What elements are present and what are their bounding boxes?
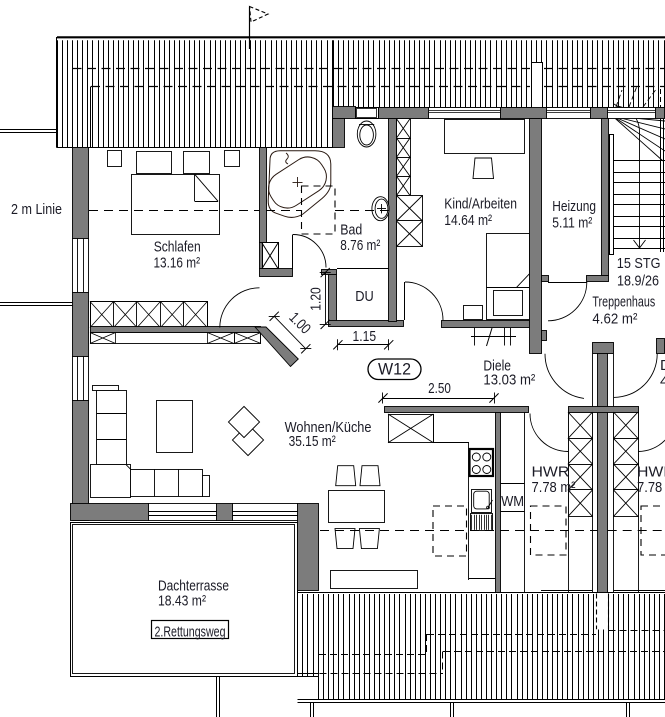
- svg-text:7.78 m²: 7.78 m²: [637, 479, 665, 496]
- svg-text:18.9/26: 18.9/26: [617, 272, 659, 289]
- svg-text:5.11 m²: 5.11 m²: [552, 215, 592, 232]
- svg-text:35.15 m²: 35.15 m²: [289, 433, 336, 450]
- svg-text:13.03 m²: 13.03 m²: [483, 371, 535, 388]
- svg-text:14.64 m²: 14.64 m²: [444, 212, 492, 229]
- svg-text:DU: DU: [355, 288, 374, 305]
- svg-text:WM: WM: [501, 493, 524, 510]
- svg-text:Schlafen: Schlafen: [154, 239, 201, 256]
- svg-text:2.50: 2.50: [428, 380, 451, 397]
- svg-text:Heizung: Heizung: [552, 198, 596, 215]
- svg-text:W12: W12: [378, 361, 411, 379]
- svg-text:Diele: Diele: [660, 357, 665, 374]
- svg-text:4.6: 4.6: [660, 373, 665, 390]
- svg-text:7.78 m²: 7.78 m²: [532, 479, 576, 496]
- svg-text:HWR: HWR: [532, 464, 570, 481]
- svg-text:Treppenhaus: Treppenhaus: [592, 294, 655, 311]
- svg-text:HWR: HWR: [637, 464, 665, 481]
- svg-text:18.43 m²: 18.43 m²: [158, 593, 206, 610]
- svg-text:1.15: 1.15: [353, 328, 377, 345]
- svg-text:15 STG: 15 STG: [617, 255, 661, 272]
- svg-text:Bad: Bad: [340, 222, 362, 239]
- svg-text:8.76 m²: 8.76 m²: [340, 237, 380, 254]
- svg-text:4.62 m²: 4.62 m²: [592, 311, 637, 328]
- svg-text:2 m Linie: 2 m Linie: [11, 201, 62, 218]
- svg-text:2.Rettungsweg: 2.Rettungsweg: [155, 624, 226, 641]
- svg-text:13.16 m²: 13.16 m²: [154, 255, 201, 272]
- svg-text:1.20: 1.20: [308, 287, 325, 311]
- svg-text:Kind/Arbeiten: Kind/Arbeiten: [444, 196, 517, 213]
